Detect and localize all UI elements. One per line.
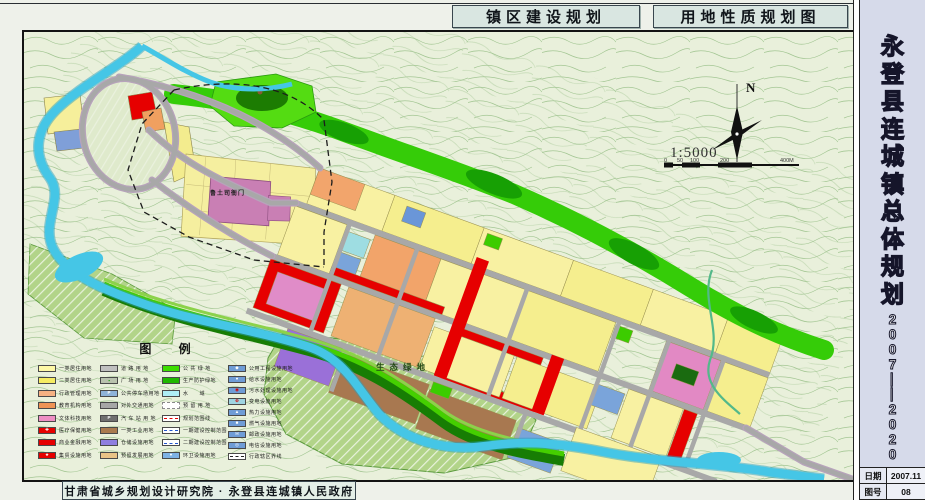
info-table: 日期2007.11图号08 xyxy=(860,467,925,500)
legend-item: P汽 车 站 用 地 xyxy=(100,414,156,423)
legend-item: ◉污水处理设施用地 xyxy=(228,386,293,395)
legend-label: 预留发展用地 xyxy=(121,452,154,459)
legend-item: 文体科技用地 xyxy=(38,414,92,423)
legend-label: 生产防护绿地 xyxy=(183,377,216,384)
sidebar-panel: 永登县连城镇总体规划 2007——2020 日期2007.11图号08 xyxy=(859,0,925,500)
legend-swatch xyxy=(100,365,118,372)
legend-label: 集贸设施用地 xyxy=(59,452,92,459)
legend-swatch: ● xyxy=(228,376,246,383)
legend-item: ◆公用工程设施用地 xyxy=(228,364,293,373)
legend-glyph-icon: ◎ xyxy=(235,443,239,448)
legend-line xyxy=(164,430,178,431)
legend-swatch: P xyxy=(100,390,118,397)
scale-tick: 400M xyxy=(780,158,794,164)
legend-swatch xyxy=(228,453,246,460)
sidebar-char: 0 xyxy=(860,447,925,462)
legend-item: 商业金融用地 xyxy=(38,438,92,447)
legend-label: 预 留 用 地 xyxy=(183,402,211,409)
legend-swatch xyxy=(38,439,56,446)
sidebar-char: 规 xyxy=(860,253,925,281)
legend-swatch xyxy=(38,402,56,409)
info-value: 2007.11 xyxy=(887,468,925,483)
sidebar-char: 总 xyxy=(860,198,925,226)
legend-swatch: ● xyxy=(162,452,180,459)
legend-glyph-icon: ■ xyxy=(236,421,239,426)
legend-swatch: ▪ xyxy=(100,377,118,384)
legend-line xyxy=(164,443,178,444)
legend-item: 一类居住用地 xyxy=(38,364,92,373)
sidebar-char: 城 xyxy=(860,143,925,171)
legend-label: 文体科技用地 xyxy=(59,415,92,422)
legend-glyph-icon: ◆ xyxy=(235,366,238,371)
title-box-construction: 镇区建设规划 xyxy=(452,5,640,28)
legend-label: 医疗保健用地 xyxy=(59,427,92,434)
eco-green-label: 生态绿地 xyxy=(376,362,430,372)
legend-swatch xyxy=(38,365,56,372)
legend-label: 商业金融用地 xyxy=(59,439,92,446)
legend-swatch xyxy=(38,377,56,384)
title-construction-text: 镇区建设规划 xyxy=(486,6,606,27)
info-value: 08 xyxy=(887,484,925,499)
sidebar-char: 2 xyxy=(860,312,925,327)
legend-item: 一期建设控制范围 xyxy=(162,426,227,435)
legend-label: 仓储设施用地 xyxy=(121,439,154,446)
credit-text: 甘肃省城乡规划设计研究院 · 永登县连城镇人民政府 xyxy=(64,483,353,499)
legend-label: 广 场 用 地 xyxy=(121,377,149,384)
legend-label: 二类居住用地 xyxy=(59,377,92,384)
map-frame: N 1:5000 0 50 100 200 400M 鲁土司衙门 生态绿地 xyxy=(22,30,855,482)
planning-sheet: 镇区建设规划 用地性质规划图 xyxy=(0,0,925,500)
legend-item: 二期建设控制范围 xyxy=(162,438,227,447)
legend-swatch xyxy=(38,390,56,397)
sidebar-char: 2 xyxy=(860,432,925,447)
legend-label: 对外交通用地 xyxy=(121,402,154,409)
compass-north-label: N xyxy=(746,80,756,95)
title-box-landuse: 用地性质规划图 xyxy=(653,5,848,28)
legend-swatch xyxy=(100,452,118,459)
legend-glyph-icon: ✉ xyxy=(235,432,239,437)
legend-glyph-icon: P xyxy=(107,416,110,421)
sidebar-char: 连 xyxy=(860,116,925,144)
sidebar-char: 体 xyxy=(860,226,925,254)
legend-item: 教育机构用地 xyxy=(38,401,92,410)
legend-glyph-icon: ⊕ xyxy=(235,399,239,404)
legend-glyph-icon: ● xyxy=(236,377,239,382)
legend-label: 一期建设控制范围 xyxy=(183,427,227,434)
legend-item: 对外交通用地 xyxy=(100,401,154,410)
legend-item: ⊕变电设施用地 xyxy=(228,397,282,406)
legend-swatch xyxy=(162,377,180,384)
legend-item: ●环卫设施用地 xyxy=(162,451,216,460)
legend-swatch: P xyxy=(100,415,118,422)
legend-item: P公共停车场用地 xyxy=(100,389,160,398)
legend-swatch xyxy=(162,402,180,409)
legend-line xyxy=(164,418,178,419)
info-row: 日期2007.11 xyxy=(860,468,925,484)
legend-swatch xyxy=(162,390,180,397)
legend-item: 规划范围线 xyxy=(162,414,211,423)
legend-glyph-icon: ★ xyxy=(45,453,49,458)
legend-label: 给水设施用地 xyxy=(249,376,282,383)
legend-label: 一类工业用地 xyxy=(121,427,154,434)
legend-item: 行政辖区界线 xyxy=(228,452,282,461)
legend-line xyxy=(230,456,244,457)
legend-label: 燃气设施用地 xyxy=(249,420,282,427)
credit-box: 甘肃省城乡规划设计研究院 · 永登县连城镇人民政府 xyxy=(62,481,356,500)
legend-item: 道 路 用 地 xyxy=(100,364,149,373)
legend-item: 二类居住用地 xyxy=(38,376,92,385)
sidebar-char: 镇 xyxy=(860,171,925,199)
legend-item: ●给水设施用地 xyxy=(228,375,282,384)
legend-label: 一类居住用地 xyxy=(59,365,92,372)
sidebar-char: 永 xyxy=(860,33,925,61)
sidebar-char: 0 xyxy=(860,327,925,342)
legend-label: 环卫设施用地 xyxy=(183,452,216,459)
legend-swatch: ✚ xyxy=(38,427,56,434)
legend-item: 公 共 绿 地 xyxy=(162,364,211,373)
legend-item: ▲热力设施用地 xyxy=(228,408,282,417)
legend-label: 二期建设控制范围 xyxy=(183,439,227,446)
legend-label: 行政辖区界线 xyxy=(249,453,282,460)
legend-label: 公 共 绿 地 xyxy=(183,365,211,372)
legend-swatch xyxy=(162,439,180,446)
top-rule xyxy=(0,3,925,4)
legend-swatch xyxy=(162,365,180,372)
legend-label: 电信设施用地 xyxy=(249,442,282,449)
legend-swatch xyxy=(100,439,118,446)
legend-item: ▪广 场 用 地 xyxy=(100,376,149,385)
legend-swatch xyxy=(100,427,118,434)
legend-swatch xyxy=(162,427,180,434)
info-label: 日期 xyxy=(860,468,887,483)
legend-swatch: ◆ xyxy=(228,365,246,372)
legend-title: 图 例 xyxy=(106,340,236,357)
sidebar: 永登县连城镇总体规划 2007——2020 日期2007.11图号08 xyxy=(853,0,925,500)
legend-label: 行政管理用地 xyxy=(59,390,92,397)
legend-label: 邮政设施用地 xyxy=(249,431,282,438)
info-label: 图号 xyxy=(860,484,887,499)
legend-label: 公共停车场用地 xyxy=(121,390,160,397)
legend-item: 预 留 用 地 xyxy=(162,401,211,410)
title-landuse-text: 用地性质规划图 xyxy=(680,6,820,27)
legend-item: 生产防护绿地 xyxy=(162,376,216,385)
legend-label: 公用工程设施用地 xyxy=(249,365,293,372)
legend-label: 规划范围线 xyxy=(183,415,211,422)
legend-label: 教育机构用地 xyxy=(59,402,92,409)
legend-item: 一类工业用地 xyxy=(100,426,154,435)
sidebar-years: 2007——2020 xyxy=(860,312,925,462)
legend-swatch xyxy=(162,415,180,422)
legend-item: 仓储设施用地 xyxy=(100,438,154,447)
legend-swatch: ★ xyxy=(38,452,56,459)
legend-label: 水 域 xyxy=(183,390,205,397)
info-row: 图号08 xyxy=(860,484,925,500)
legend-item: ◎电信设施用地 xyxy=(228,441,282,450)
legend-label: 热力设施用地 xyxy=(249,409,282,416)
sidebar-char: 登 xyxy=(860,61,925,89)
legend-glyph-icon: ✚ xyxy=(45,428,49,433)
legend-glyph-icon: ▲ xyxy=(235,410,239,415)
legend-swatch: ■ xyxy=(228,420,246,427)
legend-swatch: ◎ xyxy=(228,442,246,449)
legend-item: ★集贸设施用地 xyxy=(38,451,92,460)
sidebar-char: 县 xyxy=(860,88,925,116)
legend-item: 水 域 xyxy=(162,389,205,398)
old-town-label: 鲁土司衙门 xyxy=(210,189,245,197)
legend-swatch xyxy=(38,415,56,422)
legend-glyph-icon: ● xyxy=(170,453,173,458)
legend-item: 行政管理用地 xyxy=(38,389,92,398)
legend-item: ✚医疗保健用地 xyxy=(38,426,92,435)
legend-swatch xyxy=(100,402,118,409)
legend-glyph-icon: ▪ xyxy=(108,379,110,384)
legend-label: 道 路 用 地 xyxy=(121,365,149,372)
legend-item: ✉邮政设施用地 xyxy=(228,430,282,439)
legend-label: 汽 车 站 用 地 xyxy=(121,415,156,422)
legend-swatch: ✉ xyxy=(228,431,246,438)
legend-label: 变电设施用地 xyxy=(249,398,282,405)
legend: 图 例 一类居住用地二类居住用地行政管理用地教育机构用地文体科技用地✚医疗保健用… xyxy=(36,340,366,476)
legend-swatch: ⊕ xyxy=(228,398,246,405)
legend-swatch: ▲ xyxy=(228,409,246,416)
legend-glyph-icon: P xyxy=(107,391,110,396)
legend-glyph-icon: ◉ xyxy=(235,388,239,393)
legend-swatch: ◉ xyxy=(228,387,246,394)
sidebar-char: 划 xyxy=(860,281,925,309)
sidebar-char: — xyxy=(885,362,900,427)
legend-item: ■燃气设施用地 xyxy=(228,419,282,428)
sidebar-title: 永登县连城镇总体规划 xyxy=(860,33,925,308)
legend-label: 污水处理设施用地 xyxy=(249,387,293,394)
legend-item: 预留发展用地 xyxy=(100,451,154,460)
